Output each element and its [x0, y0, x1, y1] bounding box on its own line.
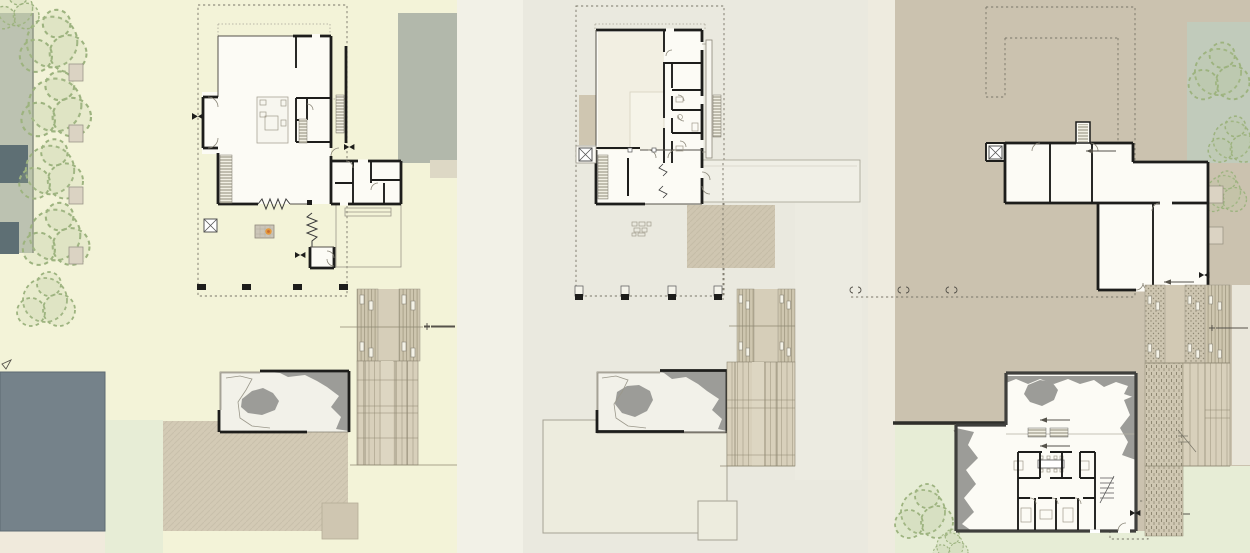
site-plan-drawing: [0, 0, 1250, 553]
pond: [219, 371, 349, 432]
panel2-patio: [687, 205, 775, 268]
panel2-path-strip: [457, 0, 523, 553]
stair-hatch: [598, 155, 608, 199]
panel1-curb: [0, 531, 105, 553]
entry-box: [989, 146, 1002, 159]
panel-upper-level-plan: [424, 0, 880, 553]
chimney-stub: [1076, 122, 1090, 143]
stair-hatch: [1028, 428, 1046, 437]
stair-hatch: [299, 119, 307, 143]
entry-box: [204, 219, 217, 232]
fireplace-icon: [255, 225, 274, 238]
panel2-side-patio: [579, 95, 596, 145]
stair-hatch: [1050, 428, 1068, 437]
panel1-patio: [163, 421, 358, 539]
pond: [597, 371, 727, 434]
panel3-edge-strip: [1232, 285, 1250, 465]
panel1-lawn: [105, 420, 163, 553]
panel-lower-level-plan: [850, 0, 1250, 553]
floor-plan-canvas: [0, 0, 1250, 553]
screen-hatch: [336, 95, 344, 133]
panel2-patio-step: [698, 501, 737, 540]
panel1-garage-apron: [430, 160, 457, 178]
panel1-garage-mass: [398, 13, 457, 163]
stair-hatch: [220, 155, 232, 203]
kitchen-island: [257, 97, 288, 143]
panel2-terrace-zone: [795, 163, 862, 480]
panel1-pool-mass: [0, 372, 105, 531]
entry-box: [576, 146, 596, 163]
panel3-path-strip: [868, 0, 895, 553]
panel-entry-level-plan: [0, 0, 457, 553]
